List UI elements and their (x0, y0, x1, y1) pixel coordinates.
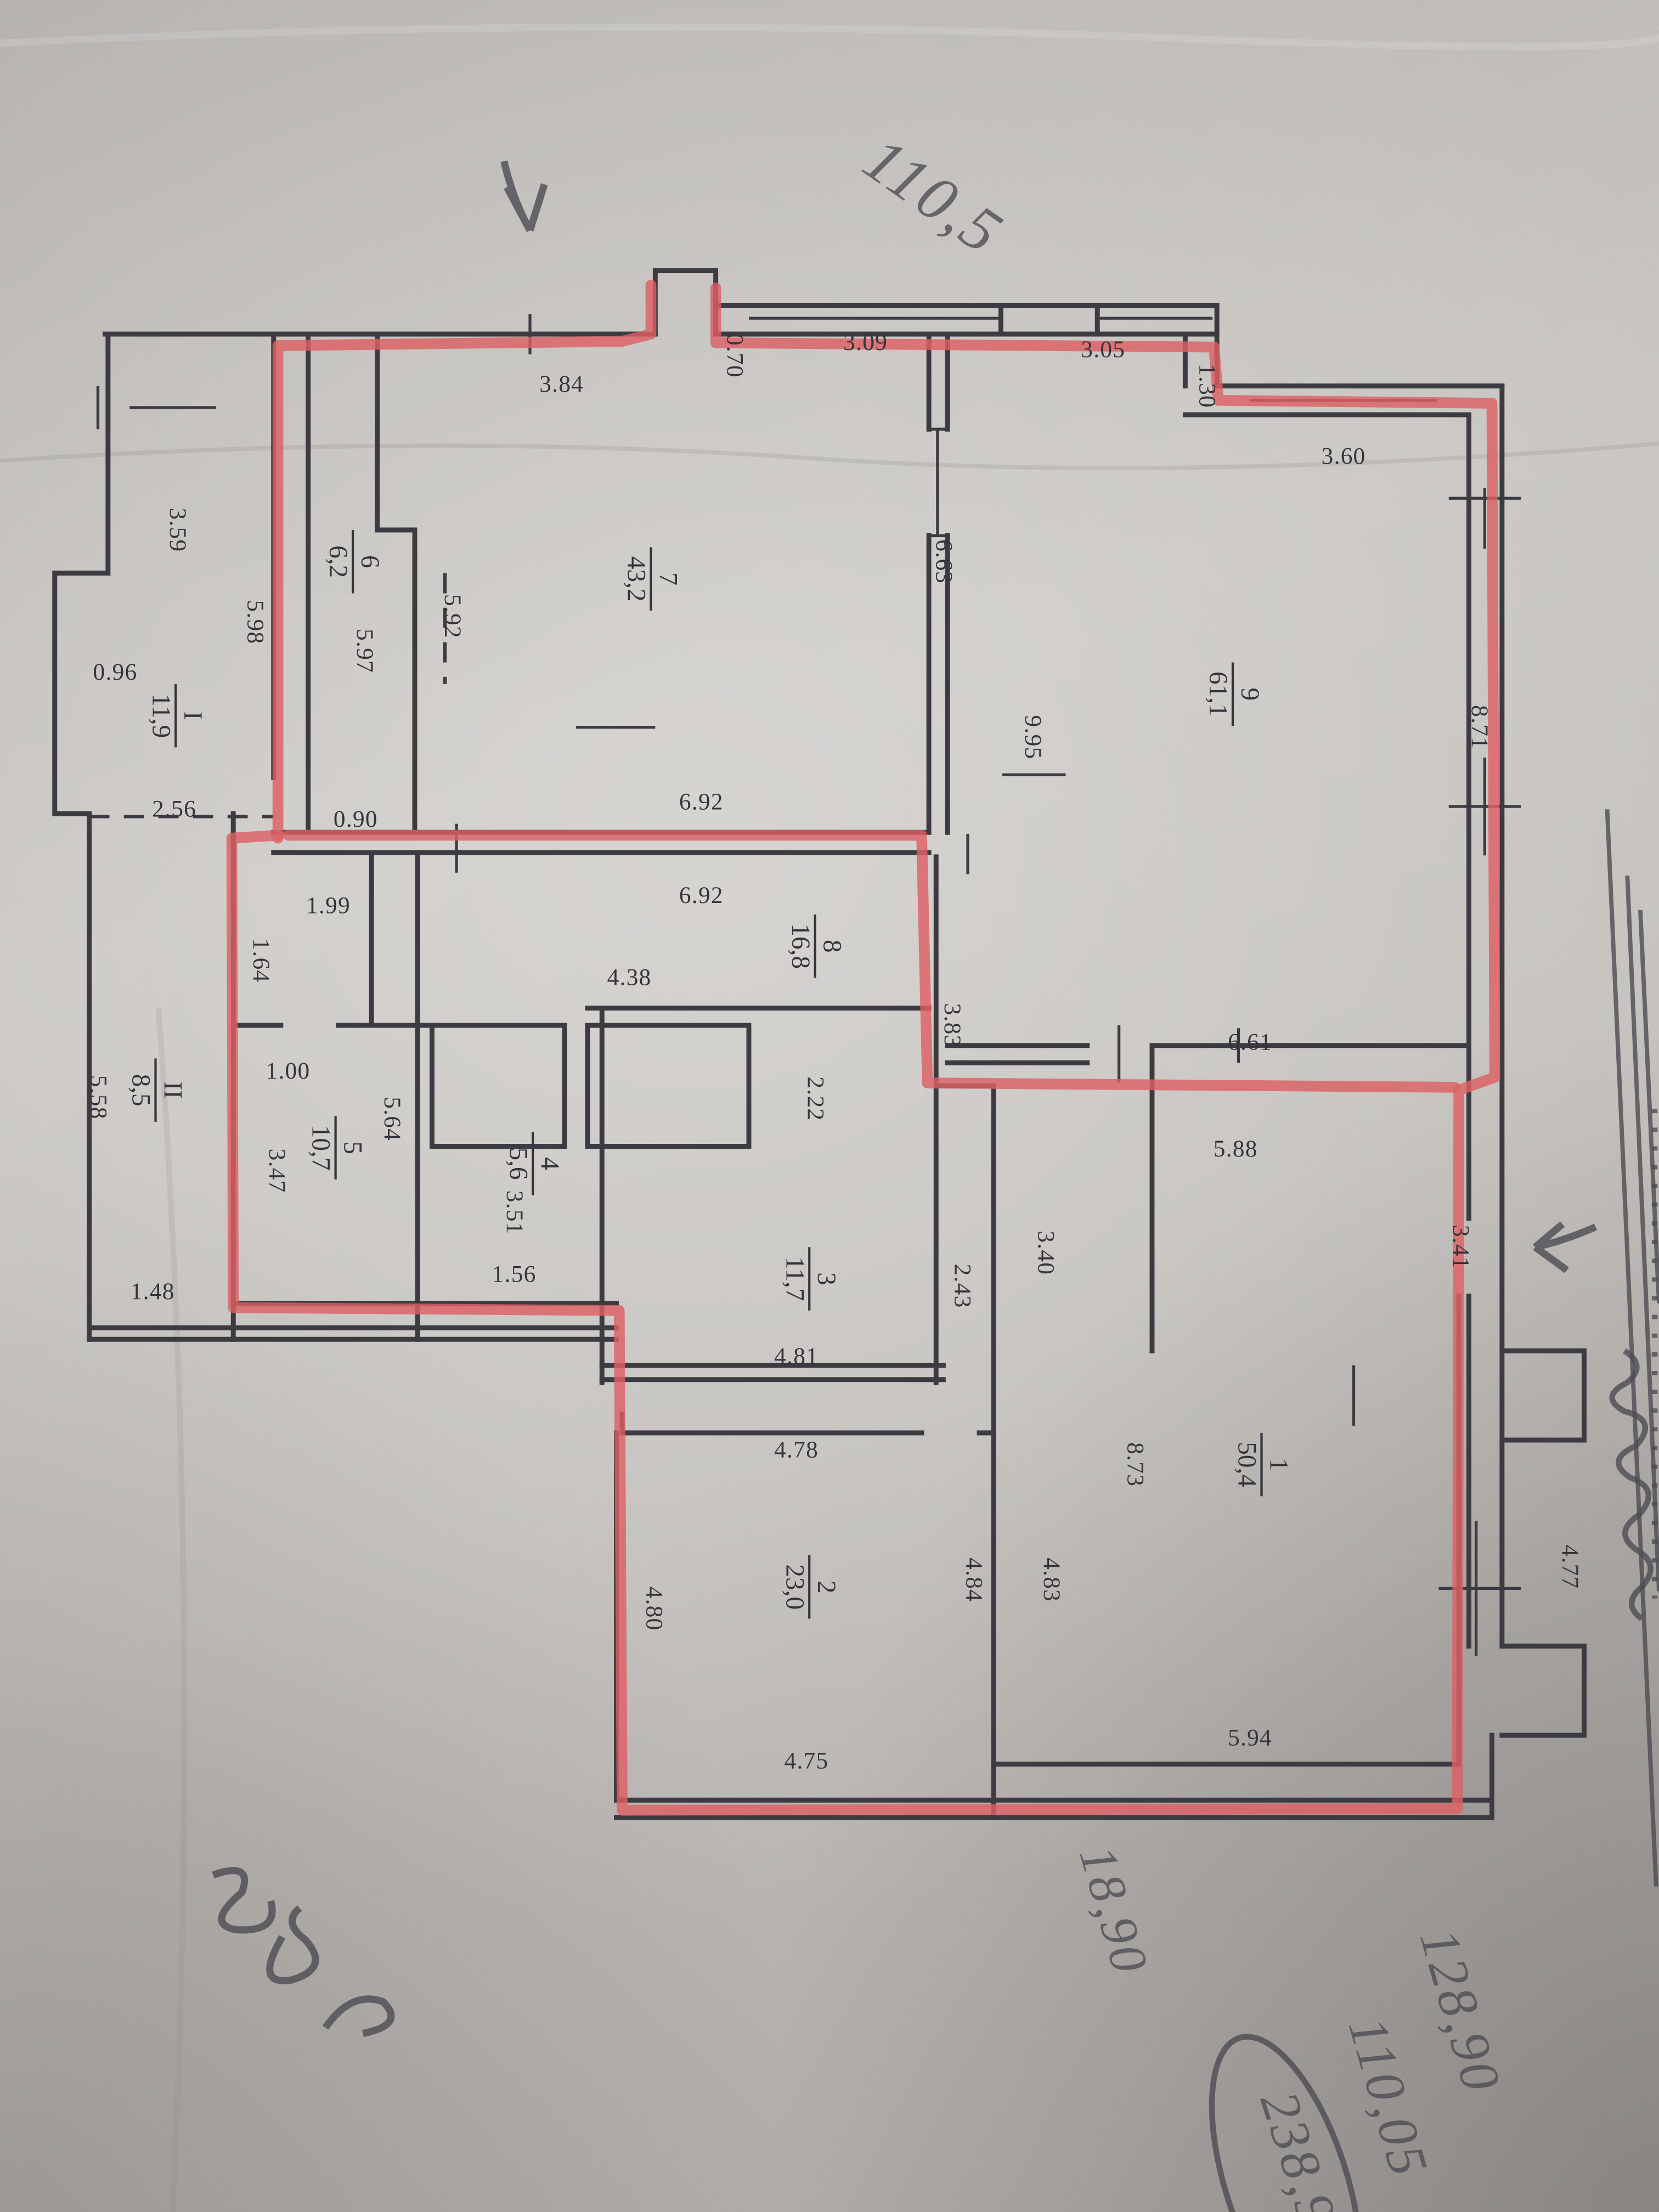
floor-plan-drawing: 3.840.703.093.051.303.608.716.639.956.92… (0, 0, 1659, 2212)
dimension-4.38-20: 4.38 (607, 964, 652, 991)
room-number: 3 (812, 1272, 840, 1285)
dimension-5.88-34: 5.88 (1214, 1136, 1258, 1162)
dimension-1.48-28: 1.48 (131, 1278, 175, 1305)
room-number: 8 (818, 940, 847, 953)
dimension-3.05-3: 3.05 (1081, 336, 1125, 363)
dimension-1.56-29: 1.56 (492, 1261, 537, 1287)
room-label-3: 311,7 (780, 1247, 840, 1311)
handwritten-number-128,90: 128,90 (1408, 1922, 1513, 2100)
dimension-3.51-27: 3.51 (501, 1190, 528, 1235)
dimension-0.96-15: 0.96 (93, 659, 137, 685)
handwritten-totals: 110,518,90128,90110,05238,95 (851, 123, 1513, 2212)
dimension-2.22-25: 2.22 (803, 1076, 829, 1121)
room-number: 7 (653, 572, 682, 585)
dimension-5.97-13: 5.97 (352, 629, 378, 673)
dimension-1.30-4: 1.30 (1194, 364, 1221, 408)
right-edge-cursive (1612, 1351, 1651, 1618)
dimension-6.92-10: 6.92 (679, 882, 724, 909)
dimension-0.70-1: 0.70 (722, 334, 748, 378)
dimension-3.41-35: 3.41 (1448, 1225, 1474, 1269)
room-number: I (178, 712, 207, 720)
dimension-0.90-17: 0.90 (334, 806, 378, 832)
room-number: 9 (1235, 687, 1264, 701)
bottom-left-scribble (213, 1871, 391, 2034)
room-area: 23,0 (780, 1564, 809, 1610)
room-area: 8,5 (127, 1074, 155, 1107)
dimension-4.77-37: 4.77 (1557, 1544, 1583, 1589)
room-number: 1 (1264, 1458, 1293, 1471)
room-label-4: 45,6 (504, 1132, 564, 1195)
hand-drawn-arrows (504, 161, 1596, 1270)
paper-creases (0, 26, 1659, 2212)
handwritten-number-110,05: 110,05 (1337, 2011, 1441, 2185)
room-label-6: 66,2 (324, 530, 384, 594)
room-number: 5 (338, 1141, 366, 1154)
dimension-6.63-7: 6.63 (930, 539, 957, 584)
room-number: II (158, 1081, 187, 1098)
dimension-8.73-36: 8.73 (1122, 1442, 1148, 1487)
room-area: 10,7 (307, 1125, 335, 1171)
room-area: 6,2 (324, 545, 352, 578)
room-label-II: II8,5 (127, 1058, 187, 1122)
room-area: 11,9 (146, 693, 175, 738)
room-area: 61,1 (1204, 672, 1232, 717)
dimension-3.47-23: 3.47 (264, 1149, 290, 1193)
room-area: 16,8 (786, 923, 815, 969)
room-label-8: 816,8 (786, 915, 847, 978)
room-area: 11,7 (780, 1257, 809, 1301)
dimension-3.59-11: 3.59 (165, 507, 191, 552)
room-area: 50,4 (1233, 1442, 1261, 1487)
room-label-5: 510,7 (307, 1116, 367, 1180)
dimension-5.92-14: 5.92 (439, 594, 466, 639)
dimension-4.83-38: 4.83 (1039, 1558, 1065, 1602)
dimension-1.64-19: 1.64 (248, 938, 274, 983)
dimension-3.09-2: 3.09 (843, 329, 888, 356)
dimension-6.92-9: 6.92 (679, 788, 724, 815)
handwritten-number-238,95: 238,95 (1249, 2084, 1358, 2212)
room-area: 43,2 (622, 556, 651, 602)
photographed-floor-plan-sheet: 3.840.703.093.051.303.608.716.639.956.92… (0, 0, 1659, 2212)
dimension-5.94-43: 5.94 (1228, 1725, 1272, 1751)
dimension-2.43-31: 2.43 (949, 1264, 975, 1308)
room-number: 4 (535, 1157, 564, 1170)
dimension-5.98-12: 5.98 (242, 600, 269, 644)
room-number: 2 (812, 1581, 840, 1594)
dimension-5.58-24: 5.58 (85, 1075, 111, 1120)
room-label-2: 223,0 (780, 1555, 840, 1619)
arrow-top-icon (504, 161, 545, 230)
dimension-3.40-32: 3.40 (1033, 1231, 1059, 1275)
dimension-1.99-18: 1.99 (306, 892, 351, 918)
dimension-6.61-33: 6.61 (1228, 1029, 1272, 1056)
room-label-I: I11,9 (146, 684, 207, 748)
arrow-right-entrance-icon (1535, 1224, 1595, 1270)
handwritten-number-18,90: 18,90 (1068, 1840, 1159, 1982)
dimension-4.81-30: 4.81 (774, 1343, 819, 1369)
dimension-4.75-42: 4.75 (784, 1748, 828, 1774)
dimension-4.80-41: 4.80 (641, 1587, 668, 1631)
room-label-7: 743,2 (622, 548, 682, 611)
dimension-1.00-21: 1.00 (266, 1058, 310, 1084)
dimension-8.71-6: 8.71 (1466, 705, 1493, 749)
dimension-4.78-40: 4.78 (774, 1437, 819, 1463)
room-number: 6 (356, 555, 384, 568)
dimension-3.84-0: 3.84 (539, 371, 584, 397)
room-label-1: 150,4 (1233, 1433, 1293, 1497)
dimension-3.60-5: 3.60 (1322, 443, 1366, 469)
adjacent-sheet-edge-lines (1607, 809, 1659, 1887)
dimension-3.83-26: 3.83 (939, 1003, 966, 1047)
dimension-9.95-8: 9.95 (1020, 715, 1046, 759)
dimension-5.64-22: 5.64 (379, 1097, 405, 1141)
dimension-2.56-16: 2.56 (152, 795, 196, 822)
dimension-4.84-39: 4.84 (961, 1558, 987, 1602)
handwritten-number-110,5: 110,5 (851, 123, 1017, 268)
room-area: 5,6 (504, 1147, 532, 1180)
room-label-9: 961,1 (1204, 663, 1264, 726)
